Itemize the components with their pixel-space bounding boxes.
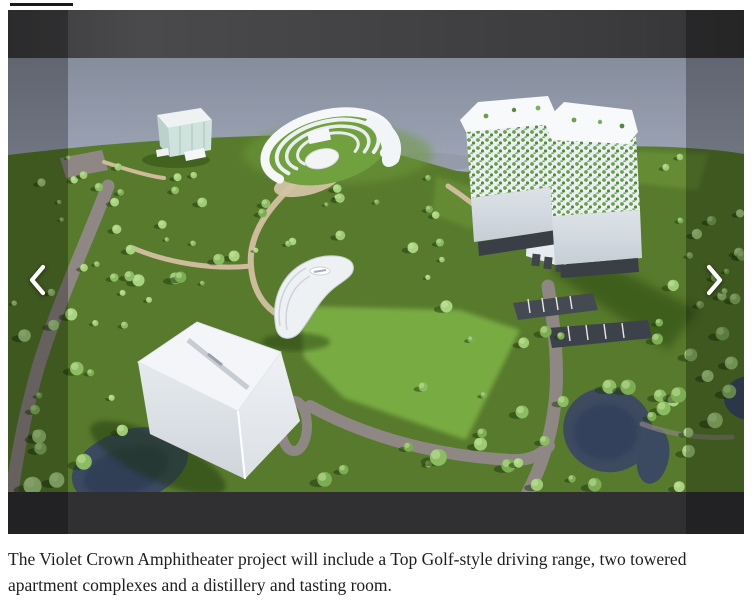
photo-carousel [8, 10, 744, 534]
letterbox-bottom [8, 492, 744, 534]
slide-image [8, 58, 744, 492]
next-slide-button[interactable] [690, 249, 738, 311]
article-page: The Violet Crown Amphitheater project wi… [0, 0, 752, 600]
chevron-left-icon [27, 263, 49, 297]
section-rule [10, 3, 73, 6]
chevron-right-icon [703, 263, 725, 297]
image-caption: The Violet Crown Amphitheater project wi… [8, 546, 746, 599]
letterbox-top [8, 10, 744, 58]
apartment-towers [460, 96, 642, 278]
prev-slide-button[interactable] [14, 249, 62, 311]
